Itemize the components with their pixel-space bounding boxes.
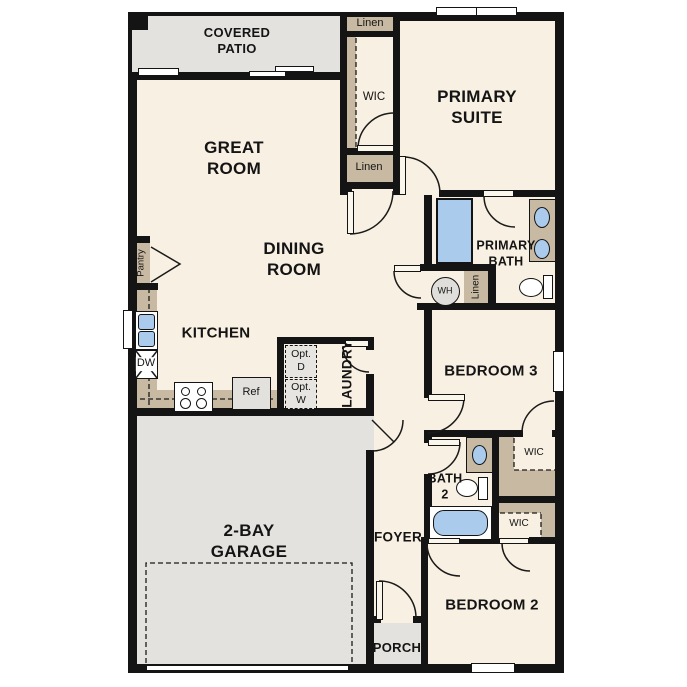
shower-fixture — [436, 198, 473, 264]
wic-bed3-shelf-bottom — [514, 470, 555, 496]
wall — [552, 430, 564, 437]
door-leaf — [376, 581, 383, 620]
wall — [514, 190, 564, 197]
stove-burner — [197, 387, 206, 396]
wall — [413, 616, 428, 623]
door-leaf — [394, 265, 421, 272]
covered-patio-label: COVEREDPATIO — [204, 25, 270, 58]
wall — [424, 430, 523, 437]
dining-room-label: DININGROOM — [263, 238, 324, 281]
door-leaf — [428, 439, 460, 446]
window — [553, 351, 564, 392]
window — [471, 663, 515, 673]
linen-hall-label: Linen — [356, 161, 383, 175]
dishwasher-label: DW — [136, 357, 156, 371]
kitchen-sink-basin — [138, 331, 155, 347]
bedroom-3-label: BEDROOM 3 — [444, 363, 538, 382]
bedroom-2-label: BEDROOM 2 — [445, 597, 539, 616]
garage-label: 2-BAYGARAGE — [211, 520, 287, 563]
stove-burner — [181, 387, 190, 396]
great-room-label: GREATROOM — [204, 137, 264, 180]
wall — [128, 12, 148, 30]
door-leaf — [483, 190, 514, 197]
stove-burner — [180, 398, 191, 409]
wic-primary-shelf — [347, 37, 356, 148]
kitchen-sink-basin — [138, 314, 155, 330]
wic-primary-label: WIC — [363, 90, 385, 104]
sliding-door — [275, 66, 314, 72]
floorplan: COVEREDPATIO GREATROOM DININGROOM KITCHE… — [0, 0, 687, 687]
laundry-label: LAUNDRY — [340, 340, 355, 408]
wic-bedroom3-label: WIC — [524, 447, 543, 460]
door-leaf — [428, 538, 460, 544]
window — [123, 310, 133, 349]
wall — [424, 310, 432, 398]
wall — [498, 496, 564, 503]
primary-suite-label: PRIMARYSUITE — [437, 86, 517, 129]
wall — [424, 195, 432, 271]
wall — [128, 236, 150, 243]
toilet-tank — [478, 477, 488, 500]
toilet-bowl — [519, 278, 543, 297]
wall — [492, 430, 499, 540]
linen-bath-label: Linen — [471, 275, 482, 299]
primary-bath-label: PRIMARYBATH — [476, 238, 535, 269]
pantry-label: Pantry — [136, 249, 147, 276]
door-leaf — [357, 145, 394, 152]
toilet-tank — [543, 275, 553, 299]
wall — [128, 12, 341, 16]
stove-burner — [196, 398, 207, 409]
foyer-label: FOYER — [374, 530, 422, 547]
sink-fixture — [534, 239, 550, 259]
bath-2-label: BATH2 — [428, 471, 463, 502]
wall — [128, 283, 158, 290]
wall — [529, 537, 564, 544]
wall — [277, 337, 284, 416]
linen-upper-label: Linen — [357, 17, 384, 31]
wall — [340, 182, 400, 189]
wall — [340, 31, 400, 37]
door-leaf — [499, 538, 529, 544]
window — [138, 68, 179, 76]
wic-bed2-shelf-top — [499, 503, 555, 513]
sink-fixture — [534, 207, 550, 228]
porch-label: PORCH — [373, 640, 421, 656]
wic-bed2-shelf-right — [541, 513, 555, 537]
garage-door-threshold — [366, 416, 374, 450]
sink-fixture — [472, 445, 487, 465]
door-leaf — [399, 156, 406, 195]
door-leaf — [428, 394, 465, 401]
wall — [555, 12, 564, 673]
stove-fixture — [174, 382, 213, 412]
window — [476, 7, 517, 16]
wall — [366, 450, 374, 666]
wic-bedroom2-label: WIC — [509, 518, 528, 531]
window — [436, 7, 477, 16]
kitchen-label: KITCHEN — [182, 325, 251, 344]
wall — [340, 16, 347, 189]
wall — [439, 190, 485, 197]
optional-dryer-label: Opt.D — [291, 348, 311, 374]
garage-door — [147, 664, 348, 672]
door-leaf — [347, 191, 354, 234]
bathtub-basin — [433, 510, 488, 536]
water-heater-label: WH — [438, 285, 453, 296]
refrigerator-label: Ref — [242, 386, 259, 400]
wall — [421, 544, 428, 673]
optional-washer-label: Opt.W — [291, 381, 311, 407]
wic-bed3-shelf-left — [499, 437, 514, 496]
